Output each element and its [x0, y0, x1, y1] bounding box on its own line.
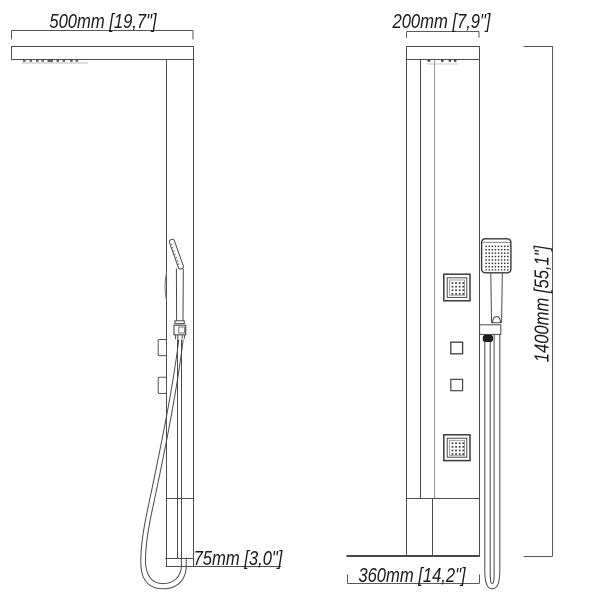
svg-text:360mm [14,2"]: 360mm [14,2"] — [358, 564, 466, 587]
svg-text:75mm [3,0"]: 75mm [3,0"] — [194, 547, 284, 570]
svg-text:200mm [7,9"]: 200mm [7,9"] — [392, 10, 492, 33]
svg-text:1400mm [55,1"]: 1400mm [55,1"] — [530, 245, 553, 362]
svg-text:500mm [19,7"]: 500mm [19,7"] — [49, 10, 157, 33]
